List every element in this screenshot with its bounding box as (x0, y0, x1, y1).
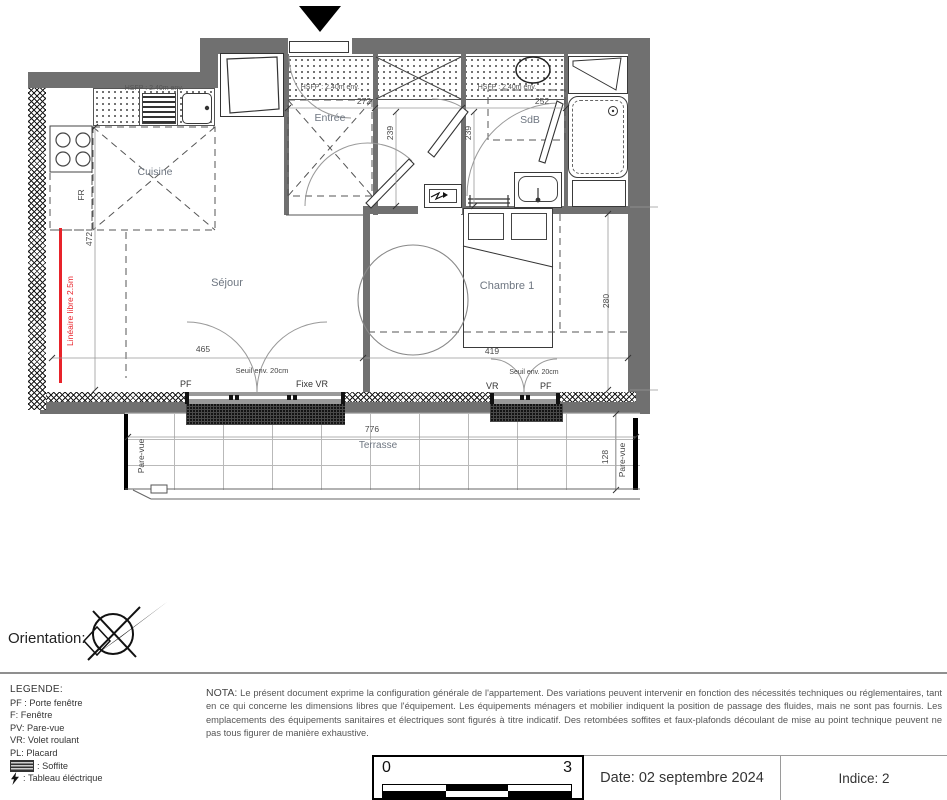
dim-entree-width: 272 (344, 96, 384, 106)
legend-block: LEGENDE: PF : Porte fenêtre F: Fenêtre P… (10, 684, 103, 785)
scale-end: 3 (563, 759, 572, 777)
legend-item-f: F: Fenêtre (10, 709, 103, 722)
plan-linework (0, 0, 947, 800)
dim-chambre-height: 280 (601, 289, 611, 313)
legend-item-pv: PV: Pare-vue (10, 722, 103, 735)
room-label-sdb: SdB (505, 114, 555, 126)
date-value: Date: 02 septembre 2024 (600, 770, 764, 786)
dim-terrasse-width: 776 (352, 424, 392, 434)
pare-vue-left-label: Pare-vue (136, 430, 146, 482)
orientation-label: Orientation: (8, 630, 86, 647)
indice-value: Indice: 2 (838, 771, 889, 786)
threshold-note-bedroom: Seuil env. 20cm (492, 369, 576, 376)
legend-title: LEGENDE: (10, 684, 103, 697)
room-label-sejour: Séjour (192, 277, 262, 289)
window-label-pf-bedroom: PF (540, 381, 552, 391)
window-label-vr-bedroom: VR (486, 381, 499, 391)
kitchen-linear-label: Linéaire libre 2.5m (65, 266, 75, 356)
legend-item-vr: VR: Volet roulant (10, 734, 103, 747)
indice-box: Indice: 2 (780, 755, 947, 800)
date-box: Date: 02 septembre 2024 (584, 755, 780, 800)
dim-sejour-window: 465 (185, 344, 221, 354)
room-label-chambre: Chambre 1 (462, 280, 552, 292)
dim-hall-depth: 239 (463, 121, 473, 145)
room-label-cuisine: Cuisine (119, 166, 191, 178)
dim-kitchen-height: 472 (84, 227, 94, 251)
fridge-label: FR (76, 185, 86, 205)
kitchen-hsfp-note: HSFP : 2.40m env. (96, 85, 212, 92)
compass-icon (84, 602, 167, 660)
soffit-swatch-icon (10, 760, 34, 772)
window-label-fixe-vr: Fixe VR (296, 379, 328, 389)
nota-block: NOTA: Le présent document exprime la con… (206, 687, 942, 741)
bath-hsfp-note: HSFP : 2.40m env. (464, 84, 550, 91)
room-label-terrasse: Terrasse (348, 440, 408, 451)
scale-bar (382, 784, 572, 798)
floor-plan-page: HSFP : 2.40m env. HSFP : 2.40m env. HSFP… (0, 0, 947, 800)
lightning-bolt-icon (10, 772, 20, 785)
dim-sdb-width: 252 (522, 96, 562, 106)
pare-vue-right-label: Pare-vue (617, 434, 627, 486)
legend-item-pl: PL: Placard (10, 747, 103, 760)
scale-start: 0 (382, 759, 391, 777)
dim-entree-depth: 239 (385, 121, 395, 145)
legend-item-soffite: : Soffite (10, 760, 103, 773)
scale-bar-box: 0 3 (372, 755, 584, 800)
entry-hsfp-note: HSFP : 2.40m env. (288, 84, 372, 91)
legend-item-tableau: : Tableau éléctrique (10, 772, 103, 785)
window-label-pf-living: PF (180, 379, 192, 389)
dim-chambre-window: 419 (474, 346, 510, 356)
section-divider (0, 672, 947, 674)
threshold-note-living: Seuil env. 20cm (216, 366, 308, 375)
legend-item-pf: PF : Porte fenêtre (10, 697, 103, 710)
room-label-entree: Entrée (300, 112, 360, 124)
dim-terrasse-depth: 128 (600, 445, 610, 469)
nota-label: NOTA: (206, 687, 237, 699)
nota-text: Le présent document exprime la configura… (206, 688, 942, 738)
